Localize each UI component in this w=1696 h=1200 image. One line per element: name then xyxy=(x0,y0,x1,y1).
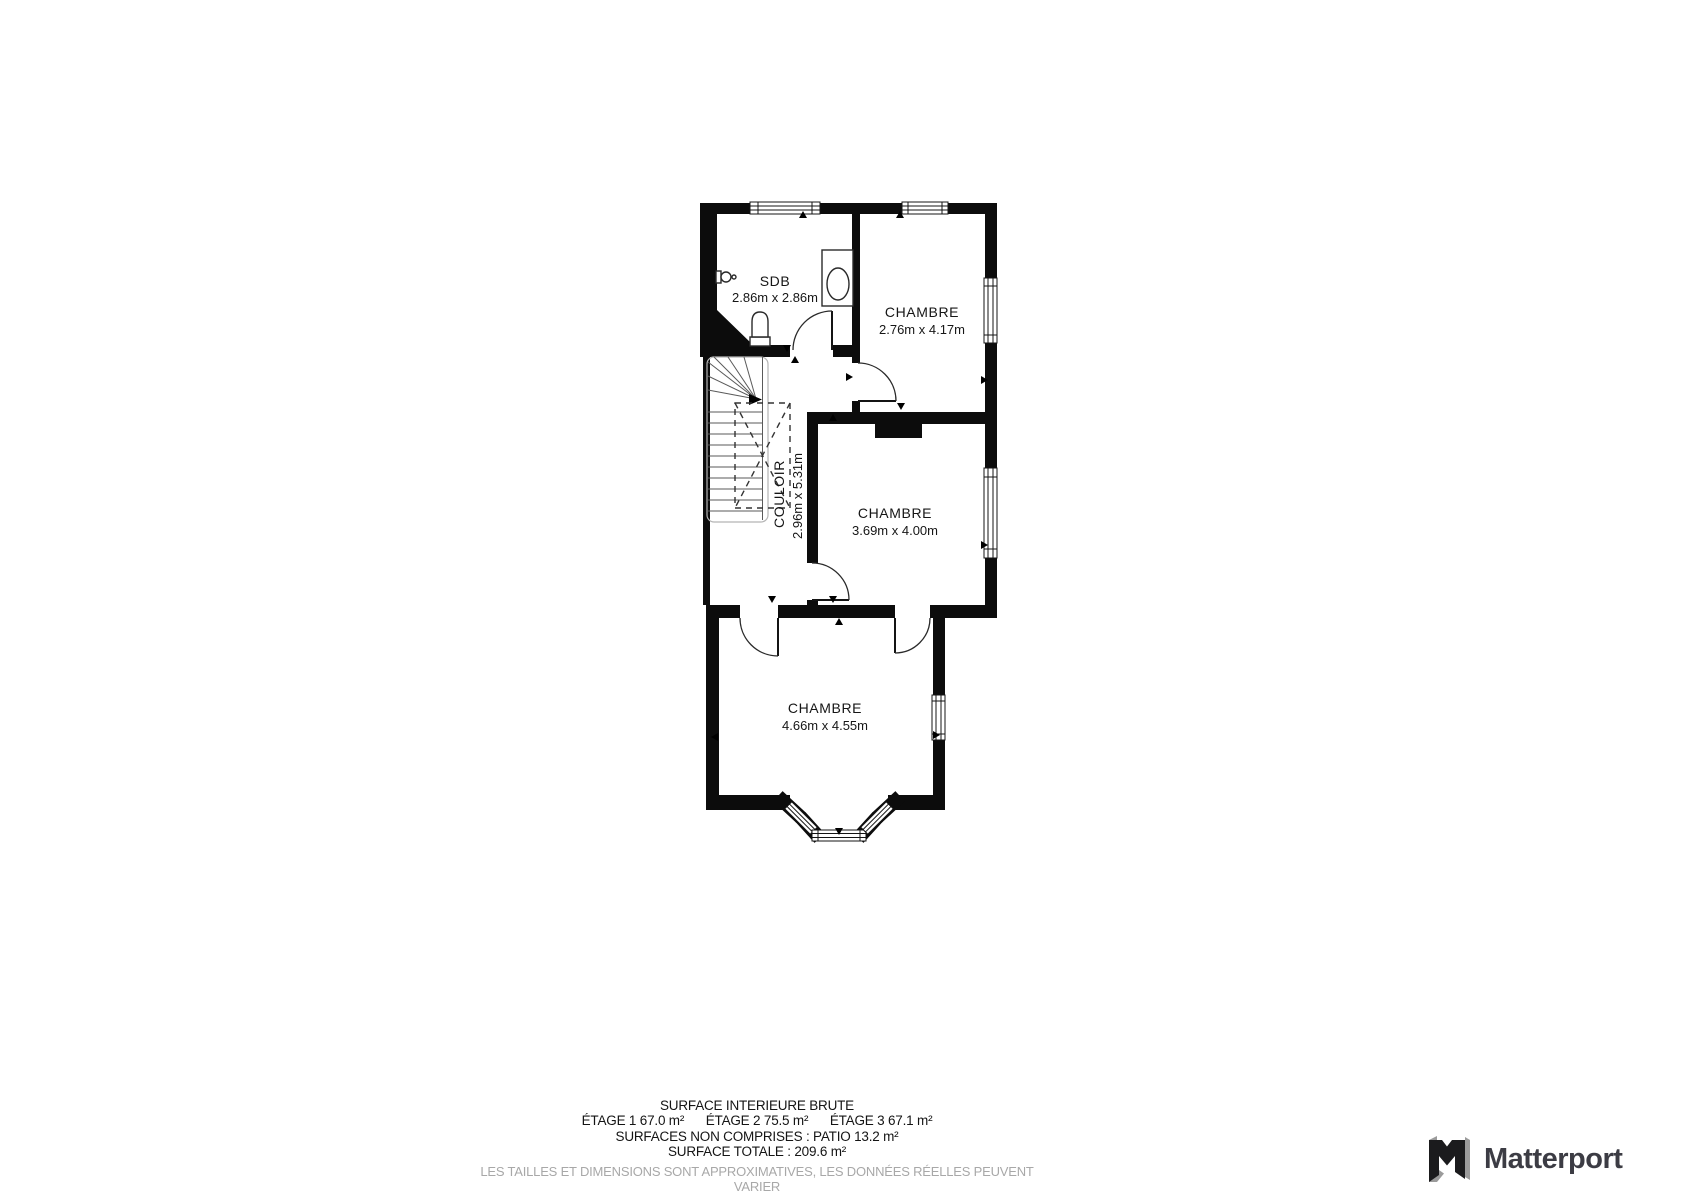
surface-summary: SURFACE INTERIEURE BRUTE ÉTAGE 1 67.0 m²… xyxy=(457,1098,1057,1194)
room-label-chambre-middle: CHAMBRE xyxy=(858,505,932,521)
wall-tap-icon xyxy=(716,271,736,283)
summary-disclaimer: LES TAILLES ET DIMENSIONS SONT APPROXIMA… xyxy=(457,1164,1057,1195)
room-dims-chambre-bottom: 4.66m x 4.55m xyxy=(782,718,868,733)
matterport-mark-icon xyxy=(1422,1134,1472,1184)
room-dims-sdb: 2.86m x 2.86m xyxy=(732,290,818,305)
window-top-sdb xyxy=(750,202,820,214)
floor-plan-page: SDB 2.86m x 2.86m CHAMBRE 2.76m x 4.17m … xyxy=(0,0,1696,1200)
room-label-chambre-bottom: CHAMBRE xyxy=(788,700,862,716)
door-middle-chambre xyxy=(812,563,849,600)
summary-floor-2: ÉTAGE 2 75.5 m² xyxy=(706,1113,809,1128)
matterport-logo-text: Matterport xyxy=(1484,1143,1622,1176)
summary-floor-3: ÉTAGE 3 67.1 m² xyxy=(830,1113,933,1128)
window-bay-left xyxy=(785,802,818,835)
door-bottom-chambre-right xyxy=(895,618,930,653)
window-top-chambre xyxy=(902,202,948,214)
room-label-sdb: SDB xyxy=(760,273,791,289)
summary-title: SURFACE INTERIEURE BRUTE xyxy=(457,1098,1057,1113)
room-label-chambre-top: CHAMBRE xyxy=(885,304,959,320)
toilet-icon xyxy=(750,312,770,346)
room-dims-couloir: 2.96m x 5.31m xyxy=(790,453,805,539)
window-bay-right xyxy=(861,802,894,835)
room-label-couloir: COULOIR xyxy=(771,460,787,528)
window-right-top-chambre xyxy=(984,278,997,343)
room-dims-chambre-middle: 3.69m x 4.00m xyxy=(852,523,938,538)
matterport-logo: Matterport xyxy=(1422,1134,1622,1184)
summary-total: SURFACE TOTALE : 209.6 m² xyxy=(457,1144,1057,1159)
summary-floor-1: ÉTAGE 1 67.0 m² xyxy=(582,1113,685,1128)
summary-excluded: SURFACES NON COMPRISES : PATIO 13.2 m² xyxy=(457,1129,1057,1144)
door-sdb xyxy=(793,311,832,350)
summary-floors: ÉTAGE 1 67.0 m² ÉTAGE 2 75.5 m² ÉTAGE 3 … xyxy=(457,1113,1057,1128)
floor-plan-svg: SDB 2.86m x 2.86m CHAMBRE 2.76m x 4.17m … xyxy=(0,0,1696,1200)
door-bottom-chambre-left xyxy=(740,618,778,656)
door-top-chambre xyxy=(858,363,896,401)
room-dims-chambre-top: 2.76m x 4.17m xyxy=(879,322,965,337)
washbasin-icon xyxy=(822,250,853,306)
